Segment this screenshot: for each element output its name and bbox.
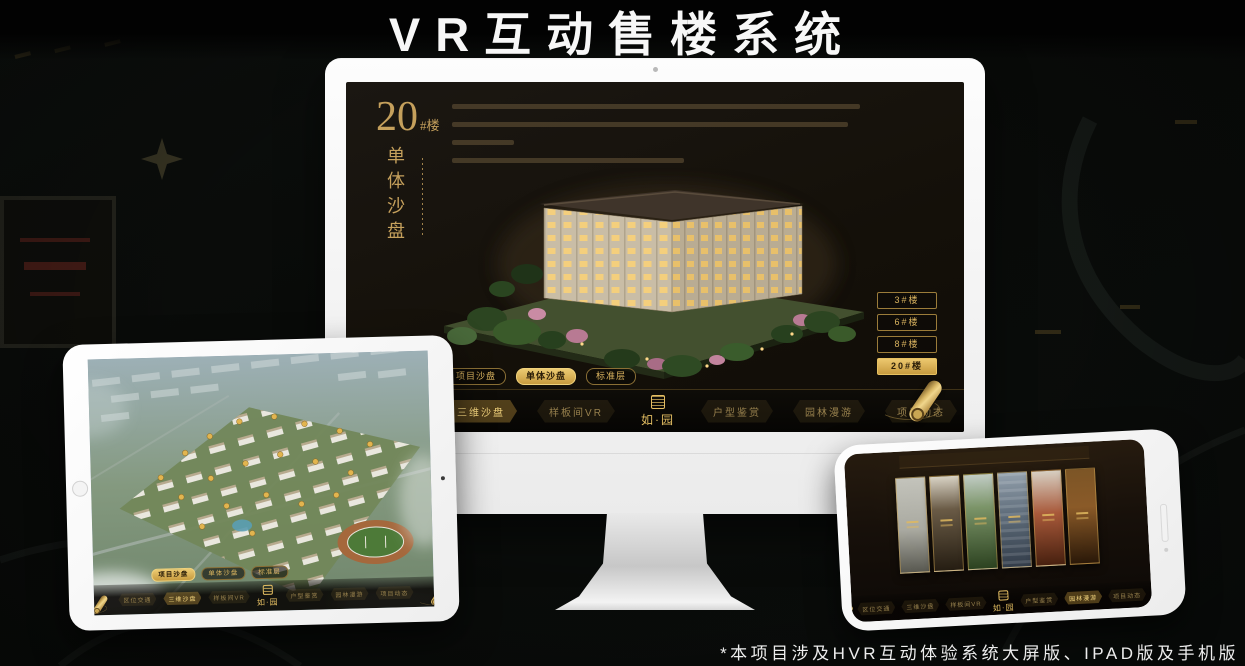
subtab-standard-floor[interactable]: 标准层 — [586, 368, 636, 385]
tablet-nav-model-room-vr[interactable]: 样板间VR — [208, 590, 250, 604]
scroll-bar — [906, 378, 944, 425]
seal-icon — [262, 584, 272, 594]
phone-nav-3d-sandtable[interactable]: 三维沙盘 — [901, 598, 940, 613]
page-title: VR互动售楼系统 — [0, 0, 1245, 65]
phone-nav-model-room-vr[interactable]: 样板间VR — [945, 596, 987, 611]
ruyuan-logo: 如·园 — [992, 589, 1015, 613]
tablet-subtab-single-building[interactable]: 单体沙盘 — [201, 566, 245, 580]
tablet-nav-project-news[interactable]: 项目动态 — [375, 586, 413, 600]
subtab-project-sandtable[interactable]: 项目沙盘 — [446, 368, 506, 385]
ruyuan-logo: 如·园 — [256, 584, 278, 608]
phone-device: 区位交通 三维沙盘 样板间VR 如·园 户型鉴赏 园林漫游 项目动态 — [833, 428, 1186, 632]
gallery-panel-autumn[interactable] — [1031, 469, 1066, 566]
tablet-camera-dot — [441, 476, 445, 480]
scroll-menu-icon[interactable] — [90, 594, 101, 606]
floor-button-group: 3#楼 6#楼 8#楼 20#楼 — [877, 292, 937, 375]
tablet-screen: 项目沙盘 单体沙盘 标准层 区位交通 三维沙盘 样板间VR 如·园 户型鉴赏 园… — [88, 351, 435, 616]
nav-item-garden-tour[interactable]: 园林漫游 — [793, 400, 865, 423]
floor-button-6[interactable]: 6#楼 — [877, 314, 937, 331]
seal-icon — [651, 395, 665, 409]
tablet-home-button[interactable] — [72, 481, 88, 497]
nav-item-model-room-vr[interactable]: 样板间VR — [537, 400, 615, 423]
description-line — [452, 104, 860, 109]
sandtable-subtabs: 项目沙盘 单体沙盘 标准层 — [446, 368, 636, 385]
tablet-nav-garden-tour[interactable]: 园林漫游 — [330, 587, 368, 601]
tablet-nav-unit-gallery[interactable]: 户型鉴赏 — [285, 588, 323, 602]
tablet-nav-3d-sandtable[interactable]: 三维沙盘 — [163, 591, 201, 605]
tablet-device: 项目沙盘 单体沙盘 标准层 区位交通 三维沙盘 样板间VR 如·园 户型鉴赏 园… — [62, 335, 459, 631]
headline-number: 20 — [376, 94, 418, 140]
page: VR互动售楼系统 20#楼 单体沙盘 — [0, 0, 1245, 666]
tablet-subtab-standard-floor[interactable]: 标准层 — [251, 565, 288, 579]
subtab-single-building[interactable]: 单体沙盘 — [516, 368, 576, 385]
headline-suffix: #楼 — [420, 118, 440, 133]
phone-nav-project-news[interactable]: 项目动态 — [1108, 587, 1147, 602]
phone-nav-location-traffic[interactable]: 区位交通 — [857, 601, 896, 616]
interior-beam-decoration — [899, 446, 1089, 469]
floor-button-3[interactable]: 3#楼 — [877, 292, 937, 309]
building-model-render[interactable] — [432, 154, 872, 379]
scroll-menu-icon[interactable] — [427, 586, 434, 598]
tablet-nav-location-traffic[interactable]: 区位交通 — [118, 592, 156, 606]
logo-text: 如·园 — [993, 601, 1015, 613]
phone-nav-garden-tour[interactable]: 园林漫游 — [1064, 590, 1103, 605]
tablet-subtab-project-sandtable[interactable]: 项目沙盘 — [151, 568, 195, 582]
scroll-menu-icon[interactable] — [902, 378, 952, 428]
headline-divider — [422, 158, 423, 236]
ruyuan-logo: 如·园 — [641, 395, 675, 428]
footnote-text: *本项目涉及HVR互动体验系统大屏版、IPAD版及手机版 — [720, 639, 1239, 664]
description-line — [452, 140, 514, 145]
headline-vertical-label: 单体沙盘 — [382, 146, 408, 246]
gallery-panel-interior[interactable] — [929, 475, 964, 572]
floor-button-20[interactable]: 20#楼 — [877, 358, 937, 375]
phone-screen: 区位交通 三维沙盘 样板间VR 如·园 户型鉴赏 园林漫游 项目动态 — [844, 439, 1152, 622]
floor-button-8[interactable]: 8#楼 — [877, 336, 937, 353]
seal-icon — [998, 590, 1009, 601]
nav-item-unit-gallery[interactable]: 户型鉴赏 — [701, 400, 773, 423]
logo-text: 如·园 — [641, 411, 675, 428]
logo-text: 如·园 — [257, 596, 279, 608]
scene-gallery — [895, 467, 1100, 573]
gallery-panel-garden[interactable] — [963, 473, 998, 570]
description-line — [452, 122, 848, 127]
phone-nav-unit-gallery[interactable]: 户型鉴赏 — [1020, 592, 1059, 607]
phone-nav-bar: 区位交通 三维沙盘 样板间VR 如·园 户型鉴赏 园林漫游 项目动态 — [851, 581, 1152, 623]
nav-item-3d-sandtable[interactable]: 三维沙盘 — [445, 400, 517, 423]
building-headline: 20#楼 单体沙盘 — [376, 96, 440, 246]
monitor-camera-dot — [653, 67, 658, 72]
scroll-menu-icon[interactable] — [844, 604, 846, 615]
phone-camera-dot — [1164, 548, 1168, 552]
gallery-panel-study[interactable] — [1065, 467, 1100, 564]
phone-speaker-slot — [1160, 504, 1169, 542]
gallery-panel-courtyard[interactable] — [895, 476, 930, 573]
gallery-panel-building[interactable] — [997, 471, 1032, 568]
